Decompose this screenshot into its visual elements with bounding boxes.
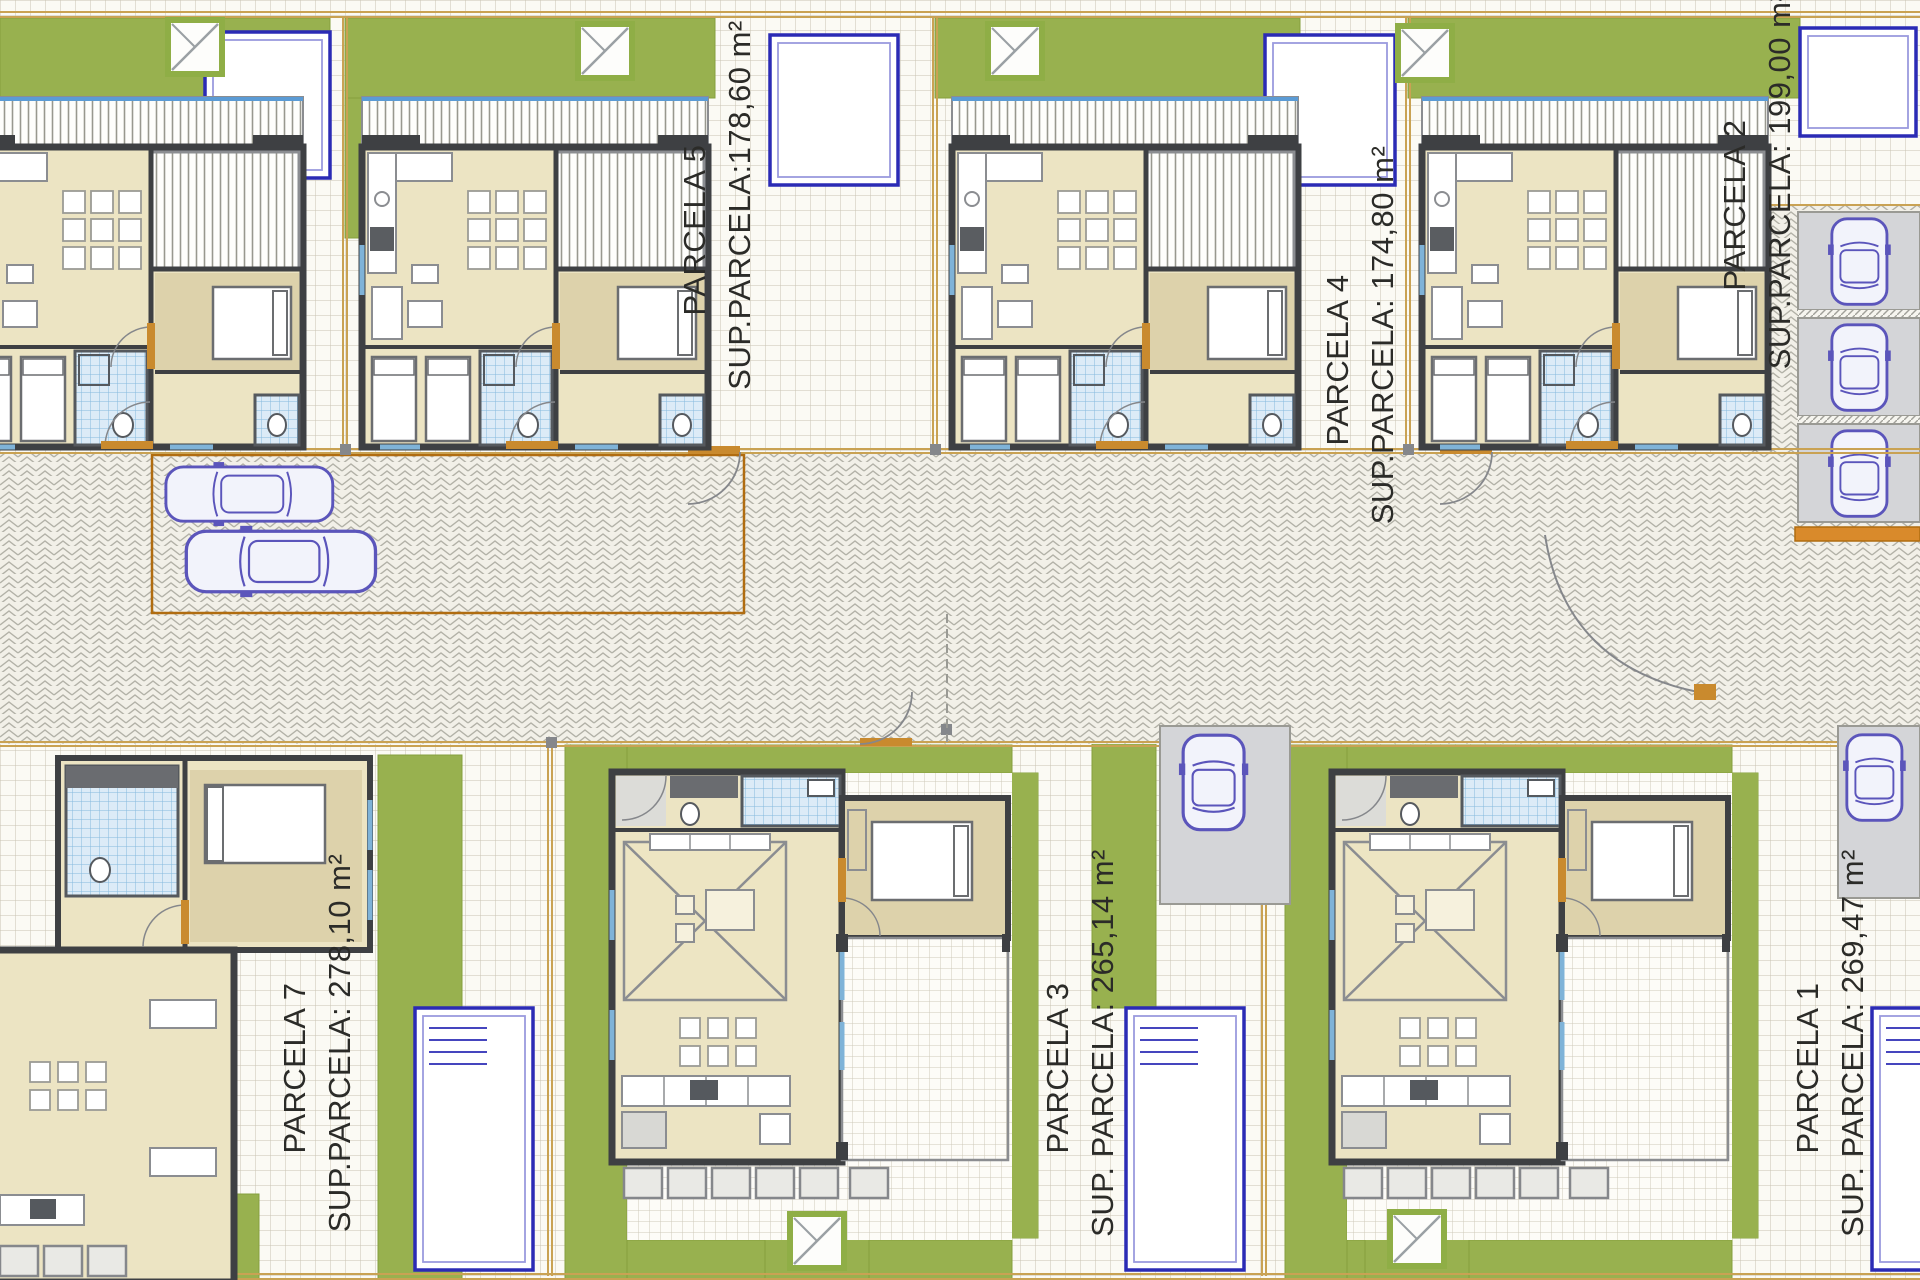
parked-car [1828, 219, 1891, 305]
parcel-area: SUP.PARCELA: 199,00 m² [1762, 0, 1797, 369]
sofa [150, 1000, 216, 1028]
parked-car [1828, 431, 1891, 516]
house-plan-top-1 [0, 97, 303, 449]
sofa [150, 1148, 216, 1176]
parcel-area: SUP. PARCELA: 269,47 m² [1835, 849, 1870, 1237]
parcel-area: SUP. PARCELA: 265,14 m² [1085, 849, 1120, 1237]
site-plan-page: PARCELA 5 SUP.PARCELA:178,60 m² PARCELA … [0, 0, 1920, 1280]
house-plan-parcela-1 [1332, 772, 1730, 1198]
house-plan-parcela-4 [952, 97, 1298, 449]
parked-car [186, 526, 375, 597]
parked-car [1179, 735, 1248, 830]
parcel-name: PARCELA 1 [1790, 982, 1825, 1153]
door-frame [181, 900, 189, 944]
terrace-pavers [0, 1246, 126, 1276]
site-plan-drawing: PARCELA 5 SUP.PARCELA:178,60 m² PARCELA … [0, 0, 1920, 1280]
parked-car [1843, 735, 1906, 821]
parked-car [166, 462, 333, 526]
house-plan-parcela-3 [612, 772, 1010, 1198]
house-plan-parcela-5 [362, 97, 708, 449]
parcel-name: PARCELA 3 [1040, 982, 1075, 1153]
gate-bar [1795, 527, 1920, 541]
parcel-area: SUP.PARCELA: 174,80 m² [1365, 146, 1400, 525]
parcel-name: PARCELA 4 [1320, 274, 1355, 445]
parcel-area: SUP.PARCELA:178,60 m² [722, 20, 757, 389]
parcel-name: PARCELA 2 [1717, 119, 1752, 290]
swimming-pool [1800, 28, 1916, 136]
parked-car [1828, 325, 1891, 411]
parcel-name: PARCELA 7 [277, 982, 312, 1153]
parcel-area: SUP.PARCELA: 278,10 m² [322, 854, 357, 1233]
swimming-pool [770, 35, 898, 185]
parcel-name: PARCELA 5 [677, 144, 712, 315]
